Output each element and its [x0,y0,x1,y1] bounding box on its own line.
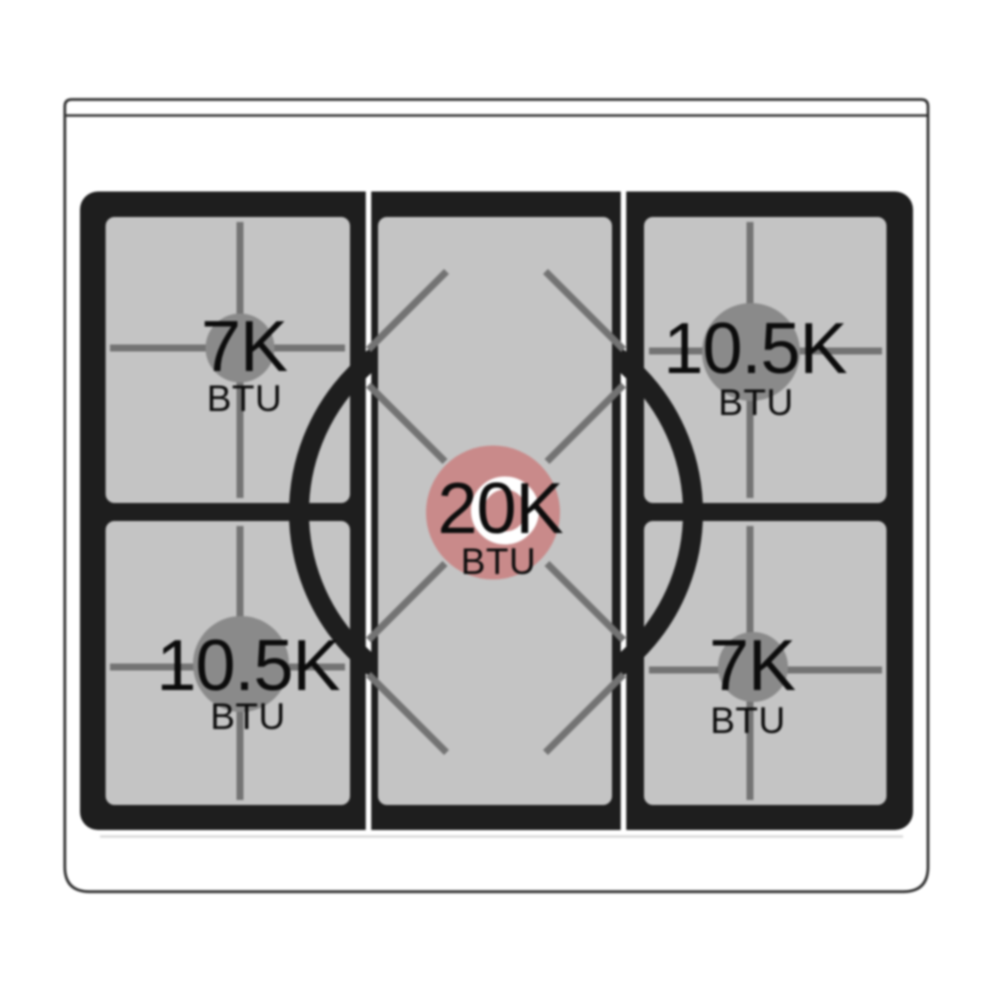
svg-text:BTU: BTU [461,541,537,582]
svg-text:BTU: BTU [718,382,794,423]
svg-text:10.5K: 10.5K [663,309,847,389]
svg-text:BTU: BTU [207,378,283,419]
svg-text:20K: 20K [437,469,563,549]
svg-text:BTU: BTU [710,700,786,741]
svg-text:7K: 7K [201,307,288,387]
svg-text:10.5K: 10.5K [156,626,340,706]
svg-text:BTU: BTU [210,696,286,737]
svg-text:7K: 7K [709,626,796,706]
